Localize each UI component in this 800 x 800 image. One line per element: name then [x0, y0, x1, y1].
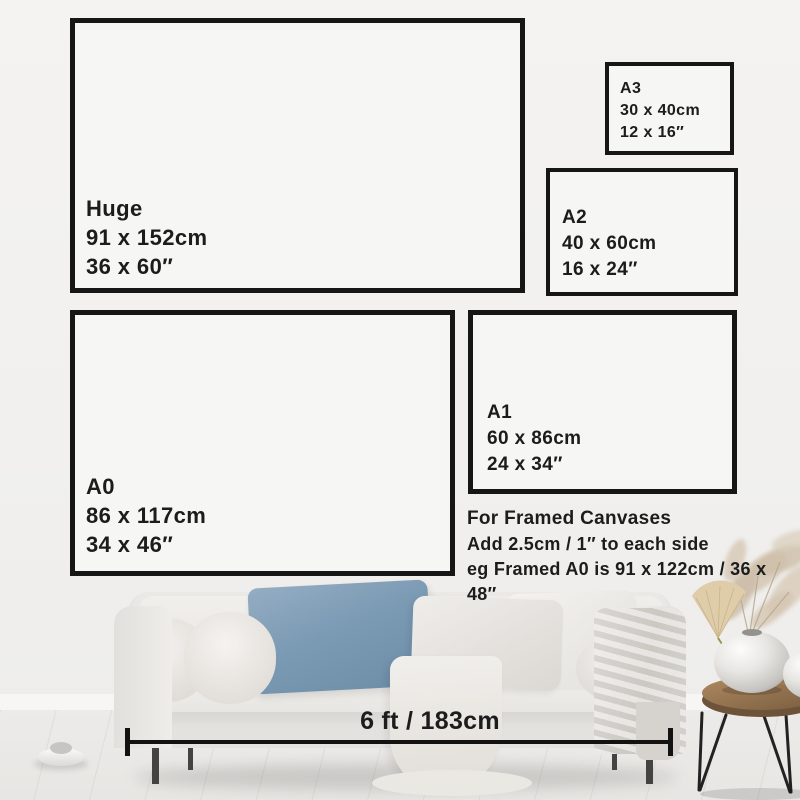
- size-frame-a2: A2 40 x 60cm 16 x 24″: [546, 168, 738, 296]
- size-imperial: 34 x 46″: [86, 530, 206, 559]
- round-vase: [714, 631, 790, 693]
- size-metric: 86 x 117cm: [86, 501, 206, 530]
- table-shadow: [700, 788, 800, 800]
- measurement-endcap-left: [125, 728, 130, 756]
- measurement-line: [127, 740, 673, 744]
- size-metric: 30 x 40cm: [620, 100, 700, 122]
- vase-opening: [742, 629, 762, 636]
- frame-label: A0 86 x 117cm 34 x 46″: [86, 472, 206, 559]
- size-imperial: 16 x 24″: [562, 257, 656, 283]
- size-frame-a1: A1 60 x 86cm 24 x 34″: [468, 310, 737, 494]
- hairpin-legs: [699, 713, 791, 792]
- size-imperial: 12 x 16″: [620, 122, 700, 144]
- size-frame-huge: Huge 91 x 152cm 36 x 60″: [70, 18, 525, 293]
- frame-label: A1 60 x 86cm 24 x 34″: [487, 400, 581, 478]
- knit-throw-pooled: [372, 770, 532, 796]
- frame-label: Huge 91 x 152cm 36 x 60″: [86, 194, 207, 281]
- sofa-leg: [152, 746, 159, 784]
- size-name: A3: [620, 78, 700, 100]
- note-line: Add 2.5cm / 1″ to each side: [467, 532, 799, 557]
- size-imperial: 24 x 34″: [487, 452, 581, 478]
- size-name: A1: [487, 400, 581, 426]
- size-frame-a3: A3 30 x 40cm 12 x 16″: [605, 62, 734, 155]
- dish-candle: [50, 742, 72, 754]
- pillow-round-white: [184, 612, 276, 704]
- size-name: Huge: [86, 194, 207, 223]
- size-name: A2: [562, 205, 656, 231]
- throw-blanket-tail: [636, 702, 680, 760]
- size-metric: 91 x 152cm: [86, 223, 207, 252]
- size-frame-a0: A0 86 x 117cm 34 x 46″: [70, 310, 455, 576]
- size-metric: 60 x 86cm: [487, 426, 581, 452]
- framed-canvas-note: For Framed Canvases Add 2.5cm / 1″ to ea…: [467, 506, 799, 607]
- sofa-leg: [188, 746, 193, 770]
- size-name: A0: [86, 472, 206, 501]
- note-title: For Framed Canvases: [467, 506, 799, 532]
- sofa-arm-left: [114, 606, 172, 748]
- frame-label: A3 30 x 40cm 12 x 16″: [620, 78, 700, 144]
- note-line: eg Framed A0 is 91 x 122cm / 36 x 48″: [467, 557, 799, 607]
- size-metric: 40 x 60cm: [562, 231, 656, 257]
- size-guide-image: Huge 91 x 152cm 36 x 60″ A3 30 x 40cm 12…: [0, 0, 800, 800]
- frame-label: A2 40 x 60cm 16 x 24″: [562, 205, 656, 283]
- sofa-width-label: 6 ft / 183cm: [300, 707, 560, 736]
- measurement-endcap-right: [668, 728, 673, 756]
- size-imperial: 36 x 60″: [86, 252, 207, 281]
